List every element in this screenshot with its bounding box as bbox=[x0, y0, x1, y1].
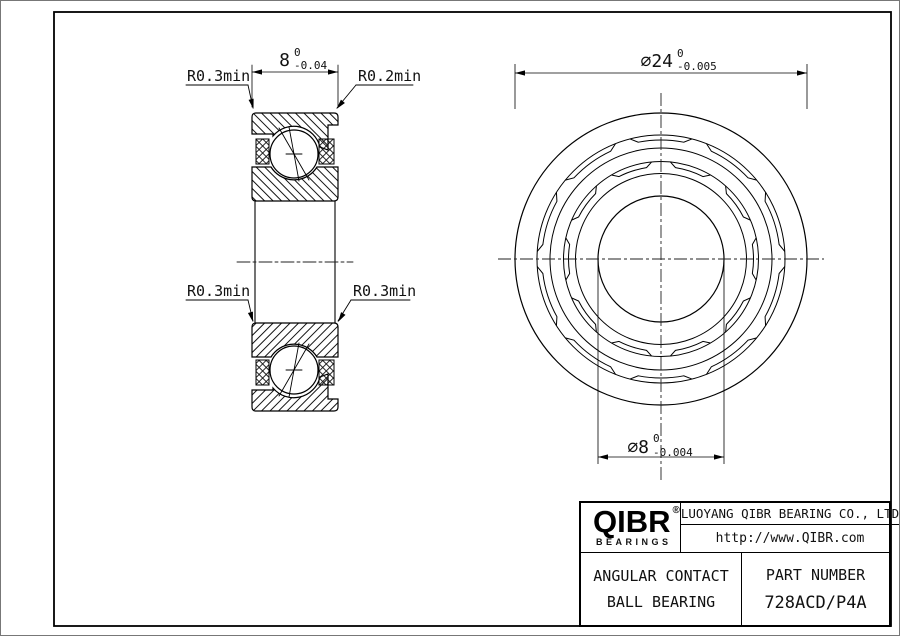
width-dimension: 8 0 -0.04 bbox=[252, 46, 338, 107]
title-block: QIBR ® BEARINGS LUOYANG QIBR BEARING CO.… bbox=[579, 501, 891, 627]
bore-dim-value: ⌀8 bbox=[627, 437, 649, 458]
cage-section-right bbox=[319, 139, 334, 164]
width-dim-lower-tol: -0.04 bbox=[294, 59, 327, 72]
bearing-section-lower-half bbox=[252, 323, 338, 411]
bearing-section-upper-half bbox=[252, 113, 338, 201]
title-block-row-product: ANGULAR CONTACT BALL BEARING PART NUMBER… bbox=[581, 553, 889, 625]
arrowhead-icon bbox=[515, 70, 525, 75]
arrowhead-icon bbox=[598, 454, 608, 459]
title-block-row-company: QIBR ® BEARINGS LUOYANG QIBR BEARING CO.… bbox=[581, 503, 889, 553]
registered-trademark-icon: ® bbox=[673, 506, 680, 516]
bore-dim-upper-tol: 0 bbox=[653, 432, 660, 445]
cage-pocket bbox=[572, 298, 597, 332]
arrowhead-icon bbox=[252, 69, 262, 74]
company-cell: LUOYANG QIBR BEARING CO., LTD http://www… bbox=[681, 503, 899, 552]
company-website: http://www.QIBR.com bbox=[681, 525, 899, 552]
cage-pocket bbox=[765, 192, 785, 251]
arrowhead-icon bbox=[248, 312, 253, 322]
cage-section-left bbox=[256, 139, 269, 164]
part-number-label: PART NUMBER bbox=[766, 566, 865, 584]
cage-pocket bbox=[537, 192, 557, 251]
part-number-value: 728ACD/P4A bbox=[764, 593, 866, 613]
section-view: 8 0 -0.04 R0.3min R0.2min R0.3min R0.3mi… bbox=[186, 46, 421, 411]
front-view: ⌀24 0 -0.005 ⌀8 0 -0.004 bbox=[498, 47, 824, 481]
arrowhead-icon bbox=[338, 312, 346, 322]
company-name: LUOYANG QIBR BEARING CO., LTD bbox=[681, 503, 899, 525]
radius-label-top-right: R0.2min bbox=[358, 67, 421, 85]
product-name-line2: BALL BEARING bbox=[607, 593, 715, 611]
radius-label-top-left: R0.3min bbox=[187, 67, 250, 85]
od-dim-lower-tol: -0.005 bbox=[677, 60, 717, 73]
qibr-logo: QIBR bbox=[593, 508, 671, 536]
od-dim-value: ⌀24 bbox=[640, 51, 673, 72]
product-cell: ANGULAR CONTACT BALL BEARING bbox=[581, 553, 742, 625]
cage-pocket bbox=[572, 186, 597, 220]
cage-pocket bbox=[765, 267, 785, 326]
engineering-drawing-page: { "section_view": { "labels": [ {"text":… bbox=[0, 0, 900, 636]
cage-pocket bbox=[726, 298, 751, 332]
bore-dim-lower-tol: -0.004 bbox=[653, 446, 693, 459]
logo-subtitle: BEARINGS bbox=[596, 537, 672, 547]
logo-cell: QIBR ® BEARINGS bbox=[581, 503, 681, 552]
arrowhead-icon bbox=[249, 99, 254, 109]
cage-pocket bbox=[630, 376, 692, 379]
radius-label-mid-right: R0.3min bbox=[353, 282, 416, 300]
arrowhead-icon bbox=[714, 454, 724, 459]
width-dim-upper-tol: 0 bbox=[294, 46, 301, 59]
cage-pocket bbox=[537, 267, 557, 326]
product-name-line1: ANGULAR CONTACT bbox=[593, 567, 728, 585]
cage-pocket bbox=[726, 186, 751, 220]
width-dim-value: 8 bbox=[279, 50, 290, 71]
radius-label-mid-left: R0.3min bbox=[187, 282, 250, 300]
arrowhead-icon bbox=[797, 70, 807, 75]
arrowhead-icon bbox=[328, 69, 338, 74]
part-number-cell: PART NUMBER 728ACD/P4A bbox=[742, 553, 889, 625]
od-dim-upper-tol: 0 bbox=[677, 47, 684, 60]
